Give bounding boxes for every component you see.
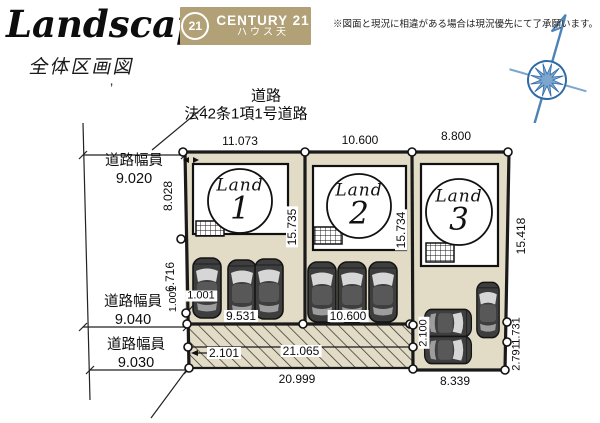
century21-badge: 21 CENTURY 21 ハウス天 <box>180 7 311 45</box>
century21-branch: ハウス天 <box>237 28 289 39</box>
lot3-tag: Land 3 <box>435 189 482 234</box>
page-title: 全体区画図 <box>27 52 138 79</box>
dim-top-lot3: 8.800 <box>441 130 471 142</box>
tick-mark: ’ <box>110 80 113 96</box>
road-title: 道路 <box>251 89 281 104</box>
dim-left-8028: 8.028 <box>162 181 174 211</box>
dim-left-1001: 1.001 <box>168 286 179 312</box>
disclaimer-text: ※図面と現況に相違がある場合は現況優先にて了承願います。 <box>333 16 598 30</box>
road-law-label: 法42条1項1号道路 <box>184 107 307 122</box>
road-width-bottom: 道路幅員 9.030 <box>107 336 165 372</box>
dim-hatch-height-left: 2.101 <box>207 347 241 359</box>
dim-parking-lot1: 9.531 <box>224 310 258 322</box>
dim-divider-lot1-2: 15.735 <box>286 207 298 248</box>
dim-hatch-height-right: 2.100 <box>419 317 430 349</box>
porch-lot3 <box>426 243 454 262</box>
dim-lot3-bottom: 8.339 <box>440 375 470 387</box>
lot2-tag: Land 2 <box>335 183 382 228</box>
road-width-middle: 道路幅員 9.040 <box>104 293 162 329</box>
dim-top-lot1: 11.073 <box>222 135 258 147</box>
dim-divider-lot2-3: 15.734 <box>395 210 407 251</box>
dim-hatch-total: 20.999 <box>279 373 316 385</box>
dim-right-1731: 1.731 <box>512 317 523 345</box>
dim-top-lot2: 10.600 <box>342 134 379 146</box>
road-width-top: 道路幅員 9.020 <box>105 152 163 188</box>
dim-right-2791: 2.791 <box>512 343 523 371</box>
century21-name: CENTURY 21 <box>216 14 309 28</box>
dim-hatch-length: 21.065 <box>281 345 322 357</box>
century21-circle-icon: 21 <box>181 12 209 40</box>
dim-parking-lot2: 10.600 <box>328 310 369 322</box>
dim-right-15418: 15.418 <box>515 218 527 255</box>
lot-plan-page: Landscape 全体区画図 ’ 21 CENTURY 21 ハウス天 ※図面… <box>0 0 600 423</box>
lot1-tag: Land 1 <box>216 178 263 223</box>
dim-leader-1001: 1.001 <box>185 291 217 302</box>
